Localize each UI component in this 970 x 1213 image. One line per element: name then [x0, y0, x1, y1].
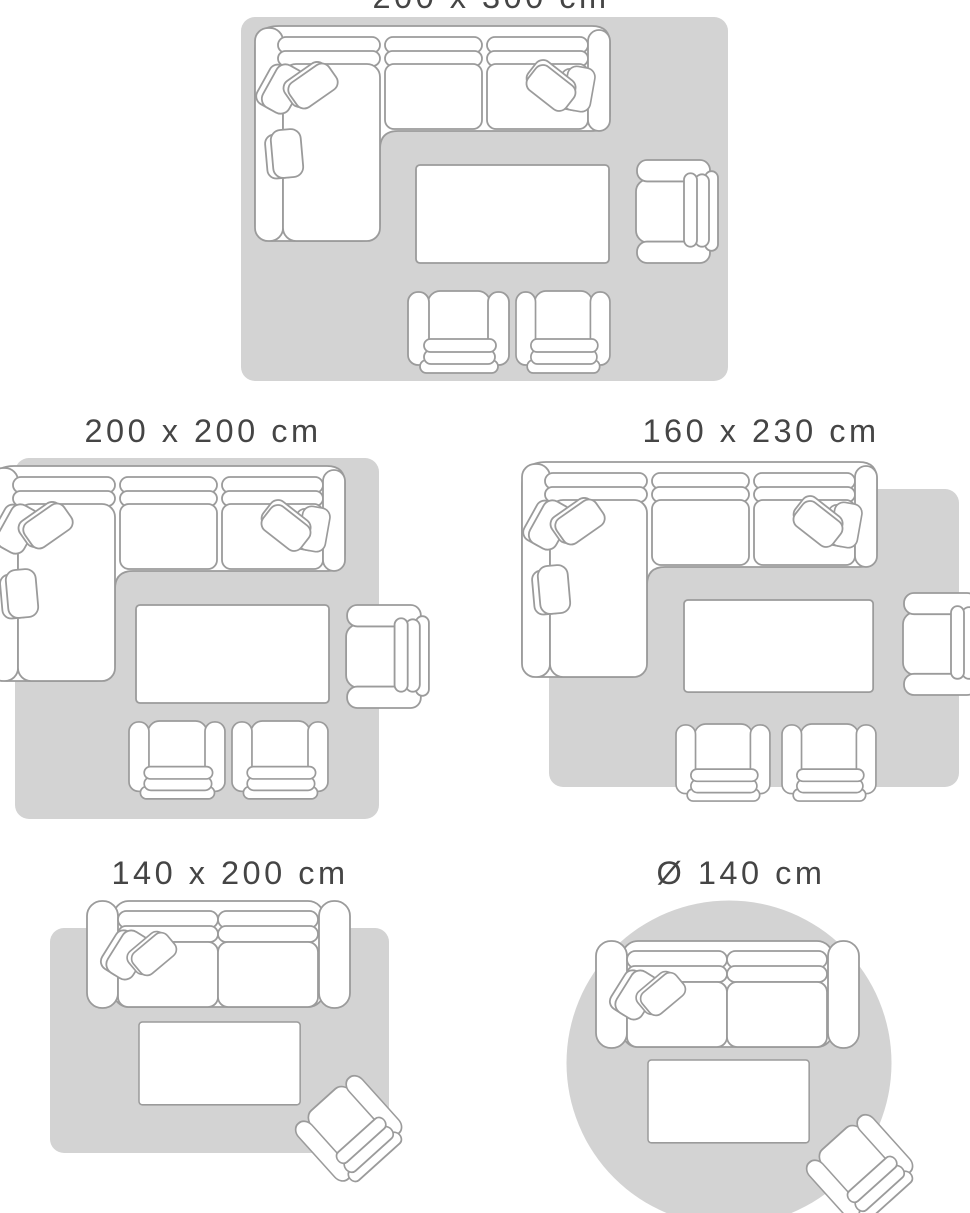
svg-text:160 x 230 cm: 160 x 230 cm	[642, 413, 879, 449]
svg-text:140 x 200 cm: 140 x 200 cm	[111, 855, 348, 891]
svg-text:200 x 300 cm: 200 x 300 cm	[372, 0, 609, 15]
svg-text:200 x 200 cm: 200 x 200 cm	[84, 413, 321, 449]
svg-text:Ø 140 cm: Ø 140 cm	[657, 855, 826, 891]
